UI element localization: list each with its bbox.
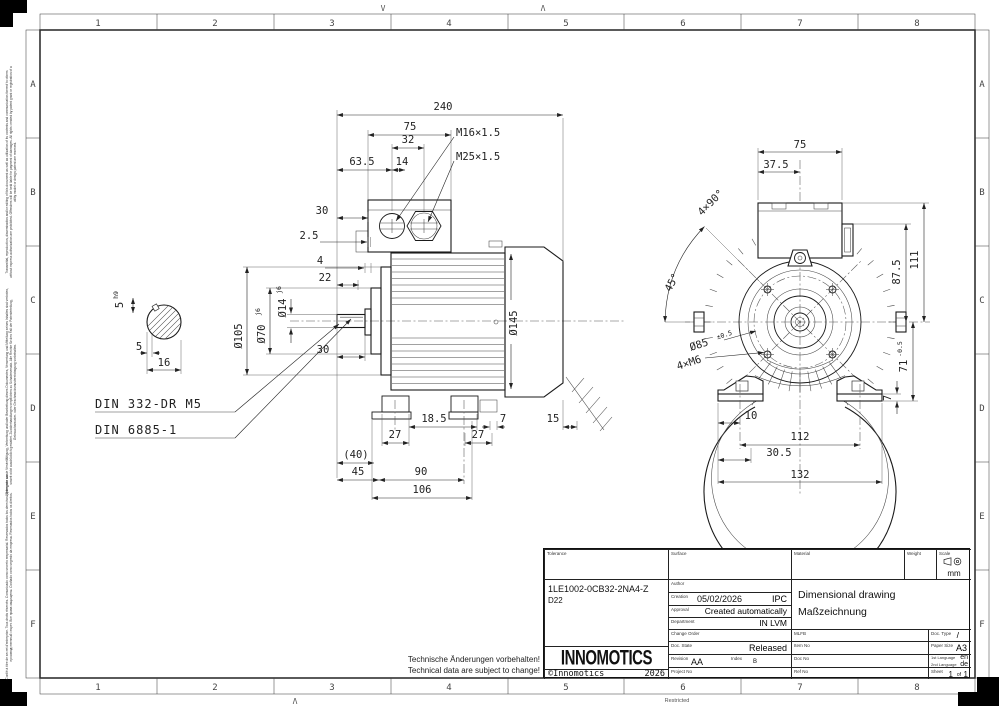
grid-row-left-d: D [30, 404, 35, 414]
logo-cell: INNOMOTICS [544, 646, 668, 669]
fold-mark-icon: Λ [541, 4, 546, 13]
approval-label: Approval [671, 607, 689, 612]
language-cell: 1st Language en 2nd Language de [928, 654, 971, 667]
dim-gland-pitch: 32 [402, 134, 415, 146]
surface-label: Surface [671, 551, 687, 556]
material-label: Material [794, 551, 810, 556]
dim-dia-spigot-front: Ø85 [688, 337, 710, 354]
sheet-no: 1 [949, 670, 953, 679]
dim-shaft-height-tol: -0.5 [896, 341, 904, 357]
doc-type-value: / [957, 630, 959, 640]
sheet-of-label: of [957, 672, 961, 678]
mlfb-label: MLFB [794, 631, 806, 636]
dim-height-connector: 87.5 [891, 259, 903, 284]
part-variant: D22 [548, 595, 665, 606]
dim-front-pad-height: 7 [882, 395, 894, 401]
grid-row-left-f: F [30, 620, 35, 630]
shaft-section-detail [118, 288, 228, 356]
dim-pad-height: 7 [500, 413, 506, 425]
grid-col-top-1: 1 [95, 19, 100, 29]
grid-col-top-7: 7 [797, 19, 802, 29]
grid-col-top-5: 5 [563, 19, 568, 29]
fan-cover [489, 241, 563, 397]
dim-base-length: 106 [413, 484, 432, 496]
dim-foot-slot: 18.5 [421, 413, 446, 425]
dim-gland-offset: 14 [396, 156, 409, 168]
title-block: Tolerance Surface Material Weight Scale … [543, 548, 970, 678]
tolerance-cell: Tolerance [544, 549, 668, 579]
index-label: Index [731, 656, 742, 661]
paper-size-cell: Paper Size A3 [928, 641, 971, 654]
revision-value: AA [691, 657, 703, 667]
copyright-year: 2026 [645, 670, 665, 679]
label-din-key: DIN 6885-1 [95, 423, 177, 437]
copyright-cell: ©Innomotics 2026 [544, 669, 668, 679]
creation-date: 05/02/2026 [697, 594, 742, 604]
dim-section-width: 16 [158, 357, 171, 369]
drawing-title-de: Maßzeichnung [798, 604, 965, 621]
change-order-cell: Change Order [668, 629, 791, 641]
dim-total-length: 240 [434, 101, 453, 113]
sheet-total: 1 [964, 670, 968, 679]
change-notes: Technische Änderungen vorbehalten! Techn… [300, 654, 540, 676]
approval-cell: Approval Created automatically [668, 605, 791, 617]
foundation-hatch [566, 377, 612, 431]
dim-spigot-length: 22 [319, 272, 332, 284]
revision-label: Revision [671, 656, 688, 661]
dim-dia-shaft: Ø14 [277, 299, 289, 318]
label-din-center-hole: DIN 332-DR M5 [95, 397, 202, 411]
dim-front-box-half: 37.5 [763, 159, 788, 171]
innomotics-logo: INNOMOTICS [552, 644, 660, 672]
material-cell: Material [791, 549, 904, 579]
department-value: IN LVM [759, 618, 787, 628]
weight-label: Weight [907, 551, 921, 556]
dim-key-width-tol: h9 [112, 291, 120, 299]
dim-dia-shaft-tol: j6 [275, 286, 283, 294]
creation-label: Creation [671, 594, 688, 599]
legal-text-de: Weitergabe sowie Vervielfältigung, Verbr… [5, 286, 17, 498]
dim-datum-to-box: 30 [316, 205, 329, 217]
project-no-cell: Project No [668, 667, 791, 679]
scale-label: Scale [939, 551, 950, 556]
drawing-title-cell: Dimensional drawing Maßzeichnung [791, 579, 971, 629]
part-number: 1LE1002-0CB32-2NA4-Z [548, 584, 665, 595]
creation-org: IPC [772, 594, 787, 604]
grid-col-bot-2: 2 [212, 683, 217, 693]
dim-key-width: 5 [114, 302, 126, 308]
dim-dia-spigot-front-tol: ±0.5 [716, 329, 733, 341]
terminal-box [356, 200, 451, 252]
doc-type-label: Doc. Type [931, 631, 951, 636]
dim-front-box-width: 75 [794, 139, 807, 151]
grid-row-right-e: E [979, 512, 984, 522]
restricted-label: Restricted [665, 698, 690, 704]
dim-dia-spigot-tol: j6 [254, 308, 262, 316]
motor-body [391, 253, 505, 390]
grid-row-right-b: B [979, 188, 984, 198]
dim-overhang: (40) [343, 449, 368, 461]
dim-flange-holes: 4×M6 [675, 354, 703, 373]
dim-box-width: 75 [404, 121, 417, 133]
revision-cell: Revision AA Index B [668, 654, 791, 667]
change-note-de: Technische Änderungen vorbehalten! [300, 654, 540, 665]
dim-gland-pos: 63.5 [349, 156, 374, 168]
lang1-value: en [960, 654, 968, 661]
label-gland-m25: M25×1.5 [456, 151, 500, 163]
grid-col-top-6: 6 [680, 19, 685, 29]
dim-clearance: 15 [547, 413, 560, 425]
item-no-label: Item No [794, 643, 810, 648]
author-label: Author [671, 581, 684, 586]
dim-shoulder: 4 [317, 255, 323, 267]
creation-cell: Creation 05/02/2026 IPC [668, 592, 791, 605]
sheet-cell: Sheet 1 of 1 [928, 667, 971, 679]
index-value: B [753, 659, 757, 665]
dim-spigot-depth: 30 [317, 344, 330, 356]
grid-row-left-b: B [30, 188, 35, 198]
ref-no-cell: Ref No [791, 667, 928, 679]
grid-row-right-d: D [979, 404, 984, 414]
grid-col-bot-3: 3 [329, 683, 334, 693]
legal-text-en: Transmittal, reproduction, dissemination… [5, 66, 17, 278]
grid-row-left-e: E [30, 512, 35, 522]
doc-state-cell: Doc. State Released [668, 641, 791, 654]
dim-foot-span: 90 [415, 466, 428, 478]
doc-type-cell: Doc. Type / [928, 629, 971, 641]
dim-height-box: 111 [909, 251, 921, 270]
scale-cell: Scale mm [936, 549, 971, 579]
weight-cell: Weight [904, 549, 936, 579]
grid-col-bot-7: 7 [797, 683, 802, 693]
grid-col-top-8: 8 [914, 19, 919, 29]
dim-foot-rear-width: 27 [472, 429, 485, 441]
dim-hole-span: 112 [791, 431, 810, 443]
tolerance-label: Tolerance [547, 551, 567, 556]
grid-row-left-c: C [30, 296, 35, 306]
doc-no-label: Doc No [794, 656, 809, 661]
grid-row-right-f: F [979, 620, 984, 630]
dim-dia-body: Ø145 [508, 310, 520, 335]
dim-hole-pattern: 4×90° [695, 187, 726, 218]
item-no-cell: Item No [791, 641, 928, 654]
dim-dia-spigot: Ø70 [256, 325, 268, 344]
dim-gap: 2.5 [300, 230, 319, 242]
dim-shaft-height: 71 [898, 360, 910, 373]
department-cell: Department IN LVM [668, 617, 791, 629]
doc-no-cell: Doc No [791, 654, 928, 667]
change-order-label: Change Order [671, 631, 700, 636]
dim-foot-front-width: 27 [389, 429, 402, 441]
sheet-label: Sheet [931, 669, 943, 674]
drawing-title-en: Dimensional drawing [798, 587, 965, 604]
lang1-label: 1st Language [931, 655, 955, 660]
grid-col-top-2: 2 [212, 19, 217, 29]
shaft [337, 309, 371, 335]
paper-size-label: Paper Size [931, 643, 953, 648]
grid-row-right-c: C [979, 296, 984, 306]
grid-col-bot-6: 6 [680, 683, 685, 693]
copyright-text: ©Innomotics [548, 670, 604, 679]
dim-base-width: 132 [791, 469, 810, 481]
dim-shaft-length: 45 [352, 466, 365, 478]
grid-col-top-3: 3 [329, 19, 334, 29]
fold-mark-icon: V [381, 4, 386, 13]
doc-state-label: Doc. State [671, 643, 692, 648]
connector-plug [842, 224, 853, 256]
grid-col-bot-1: 1 [95, 683, 100, 693]
grid-col-bot-5: 5 [563, 683, 568, 693]
doc-state-value: Released [749, 643, 787, 653]
approval-value: Created automatically [705, 606, 787, 616]
projection-symbol-icon [943, 557, 965, 566]
grid-col-top-4: 4 [446, 19, 451, 29]
grid-row-right-a: A [979, 80, 985, 90]
dim-dia-flange: Ø105 [233, 323, 245, 348]
label-gland-m16: M16×1.5 [456, 127, 500, 139]
dim-key-depth: 5 [136, 341, 142, 353]
legal-text-multilang: Confié à titre de secret d'entreprise. T… [5, 471, 13, 683]
dim-hole-angle: 45° [663, 271, 683, 293]
dim-pad-offset: 30.5 [766, 447, 791, 459]
dim-hole-to-edge: 10 [745, 410, 758, 422]
paper-size-value: A3 [956, 643, 967, 653]
project-no-label: Project No [671, 669, 692, 674]
drawing-sheet: { "border": { "columns": ["1","2","3","4… [0, 0, 999, 706]
author-cell: Author [668, 579, 791, 592]
unit-value: mm [937, 569, 971, 578]
ref-no-label: Ref No [794, 669, 808, 674]
surface-cell: Surface [668, 549, 791, 579]
department-label: Department [671, 619, 695, 624]
part-number-cell: 1LE1002-0CB32-2NA4-Z D22 [544, 579, 668, 646]
mlfb-cell: MLFB [791, 629, 928, 641]
fold-mark-icon: Λ [293, 697, 298, 706]
grid-col-bot-4: 4 [446, 683, 451, 693]
change-note-en: Technical data are subject to change! [300, 665, 540, 676]
side-view [118, 200, 625, 484]
grid-col-bot-8: 8 [914, 683, 919, 693]
grid-row-left-a: A [30, 80, 36, 90]
